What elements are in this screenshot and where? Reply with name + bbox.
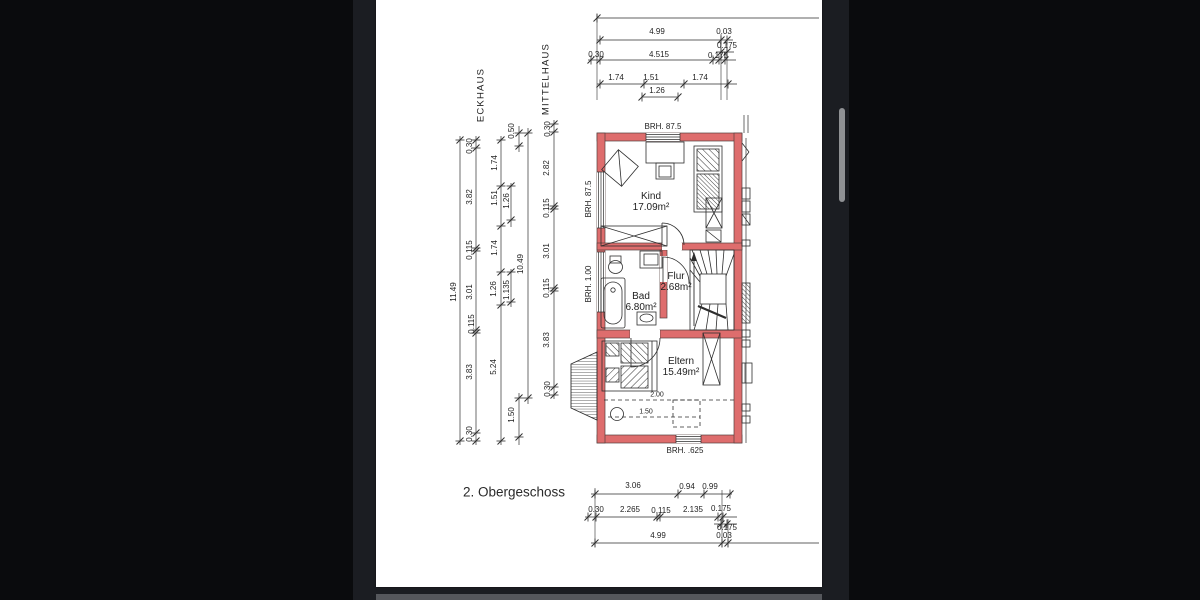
dim-left-1-74-8: 1.74 (491, 155, 499, 171)
dim-bottom-2-265-4: 2.265 (620, 506, 640, 514)
dim-top-1-51-7: 1.51 (643, 74, 659, 82)
room-area-bad: 6.80m² (625, 303, 656, 313)
dim-left-1-26-13: 1.26 (503, 193, 511, 209)
kind-furniture (601, 142, 722, 246)
sill-label-1: BRH. 87.5 (585, 181, 593, 218)
dim-bottom-0-115-5: 0.115 (651, 507, 670, 515)
dim-left-3-01-4: 3.01 (466, 284, 474, 300)
dim-left-1-135-14: 1.135 (503, 280, 511, 300)
dim-left-1-51-9: 1.51 (491, 190, 499, 206)
stairs (690, 250, 734, 330)
dim-left-0-50-15: 0.50 (508, 123, 516, 139)
dim-bottom-0-30-3: 0.30 (588, 506, 604, 514)
dim-bottom-0-94-1: 0.94 (679, 483, 695, 491)
dim-bottom-0-175-7: 0.175 (711, 505, 731, 513)
dim-left-0-30-7: 0.30 (466, 426, 474, 442)
room-area-kind: 17.09m² (633, 203, 670, 213)
sill-label-0: BRH. 87.5 (645, 123, 682, 131)
roof-edge-label-1: 1.50 (639, 409, 653, 416)
dim-left-3-83-6: 3.83 (466, 364, 474, 380)
eltern-furniture (602, 333, 736, 427)
viewer-stage: 4.990.030.304.5150.1750.1751.741.511.741… (0, 0, 1200, 600)
dim-bottom-0-03-10: 0.03 (716, 532, 732, 540)
dim-left-0-30-1: 0.30 (466, 138, 474, 154)
dim-left-11-49-0: 11.49 (450, 282, 458, 301)
bay-window (571, 352, 597, 420)
room-name-flur: Flur (667, 272, 684, 282)
bad-fixtures (601, 251, 662, 328)
dim-left-1-74-10: 1.74 (491, 240, 499, 256)
dim-bottom-0-99-2: 0.99 (702, 483, 718, 491)
dim-top-4-515-3: 4.515 (649, 51, 669, 59)
floor-title: 2. Obergeschoss (463, 485, 565, 499)
dim-left-10-49-17: 10.49 (517, 254, 525, 274)
dim-left-0-115-5: 0.115 (468, 314, 476, 333)
dim-left-2-82-19: 2.82 (543, 160, 551, 176)
room-name-kind: Kind (641, 192, 661, 202)
dim-left-0-30-24: 0.30 (544, 381, 552, 397)
room-name-bad: Bad (632, 292, 650, 302)
dim-left-0-115-20: 0.115 (543, 198, 551, 217)
dim-top-0-175-4: 0.175 (717, 42, 737, 50)
dim-bottom-3-06-0: 3.06 (625, 482, 641, 490)
room-area-flur: 2.68m² (660, 283, 691, 293)
dim-bottom-2-135-6: 2.135 (683, 506, 703, 514)
neighbor-outline (742, 115, 752, 443)
sill-label-3: BRH. .625 (667, 447, 704, 455)
house-label-mittelhaus: MITTELHAUS (541, 43, 551, 115)
dim-left-0-115-3: 0.115 (466, 240, 474, 259)
dim-top-1-74-8: 1.74 (692, 74, 708, 82)
dim-left-5-24-12: 5.24 (490, 359, 498, 375)
room-area-eltern: 15.49m² (663, 368, 700, 378)
house-label-eckhaus: ECKHAUS (476, 68, 486, 122)
scrollbar-thumb[interactable] (839, 108, 845, 202)
dim-left-1-50-16: 1.50 (508, 407, 516, 423)
dim-top-0-30-2: 0.30 (588, 51, 604, 59)
dim-left-0-115-22: 0.115 (543, 278, 551, 297)
dim-left-1-26-11: 1.26 (490, 281, 498, 297)
dim-left-3-83-23: 3.83 (543, 332, 551, 348)
dim-left-3-01-21: 3.01 (543, 243, 551, 259)
dim-top-1-74-6: 1.74 (608, 74, 624, 82)
dim-top-1-26-9: 1.26 (649, 87, 665, 95)
roof-edge-label-0: 2.00 (650, 392, 664, 399)
sill-label-2: BRH. 1.00 (585, 266, 593, 303)
dim-left-0-30-18: 0.30 (544, 121, 552, 137)
dim-bottom-4-99-9: 4.99 (650, 532, 666, 540)
dim-top-0-03-1: 0.03 (716, 28, 732, 36)
dim-left-3-82-2: 3.82 (466, 189, 474, 205)
dim-top-0-175-5: 0.175 (708, 52, 728, 60)
room-name-eltern: Eltern (668, 357, 694, 367)
dim-top-4-99-0: 4.99 (649, 28, 665, 36)
